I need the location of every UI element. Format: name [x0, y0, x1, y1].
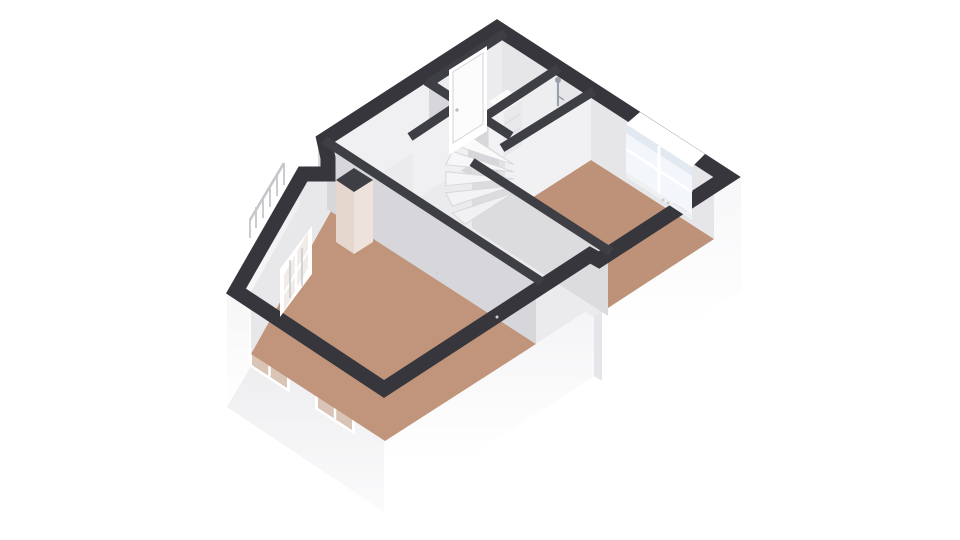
switch-dot — [662, 199, 665, 202]
floor-plan-3d-render — [0, 0, 960, 540]
switch-dot — [496, 316, 499, 319]
switch-dot — [436, 272, 439, 275]
door-handle — [455, 108, 458, 111]
column-face-right — [354, 180, 373, 254]
column-face-front — [336, 180, 354, 254]
switch-dot — [667, 202, 670, 205]
floor-plan-canvas — [0, 0, 960, 540]
duct-column — [336, 168, 373, 254]
shower-head — [555, 77, 561, 83]
